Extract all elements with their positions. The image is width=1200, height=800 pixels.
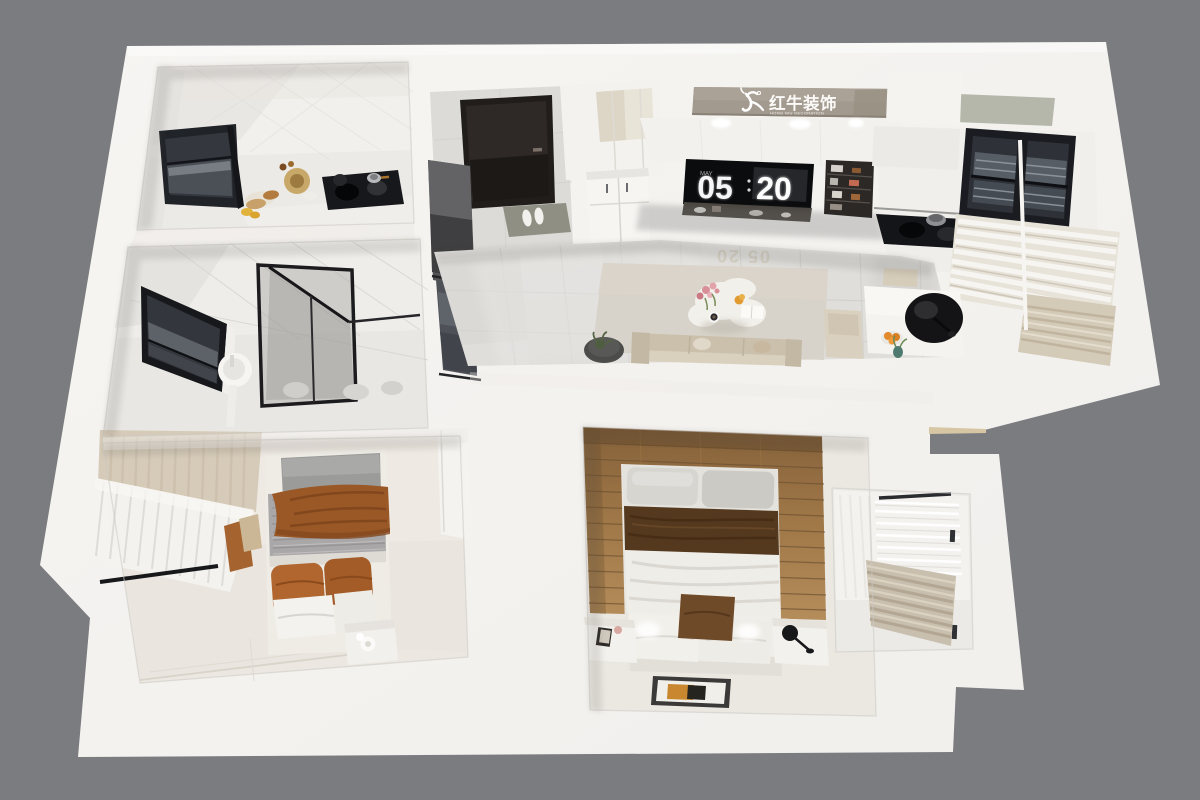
svg-text:MAY: MAY xyxy=(700,171,713,177)
svg-text:HONG NIU DECORATION: HONG NIU DECORATION xyxy=(770,111,824,116)
svg-text:20: 20 xyxy=(756,170,793,207)
